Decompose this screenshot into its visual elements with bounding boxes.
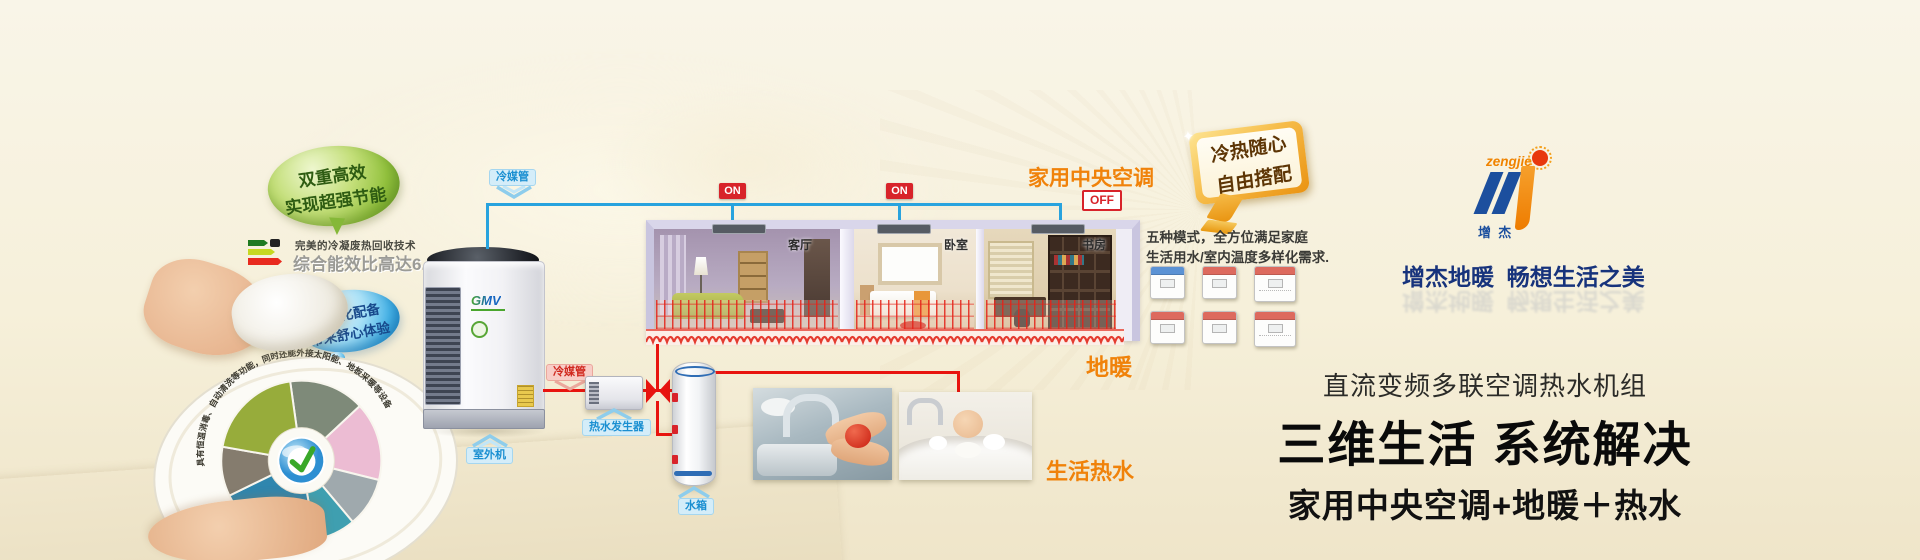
headline-subtitle: 直流变频多联空调热水机组 (1235, 366, 1735, 403)
mode-card-5-header (1203, 312, 1236, 320)
gold-bubble: ✦ 冷热随心 自由搭配 (1180, 114, 1332, 240)
pipe-blue-vertical-unit (486, 205, 489, 249)
room-label-bedroom: 卧室 (944, 236, 968, 253)
banner: 双重高效 实现超强节能 完美的冷凝废热回收技术 综合能效比高达6.6 多样化配备… (0, 0, 1920, 560)
hot-water-generator-vents (589, 382, 599, 404)
cassette-unit-bedroom (877, 224, 931, 234)
room-label-study: 书房 (1082, 236, 1106, 253)
kitchen-sink (757, 444, 837, 476)
bath-photo (899, 392, 1032, 480)
floor-heating-bedroom (856, 300, 974, 329)
mode-card-3 (1254, 266, 1296, 302)
outdoor-unit: GMV (423, 247, 543, 430)
switch-on-bedroom: ON (886, 183, 913, 199)
study-books (1054, 255, 1084, 265)
headline-formula: 家用中央空调+地暖＋热水 (1235, 479, 1735, 527)
switch-on-living: ON (719, 183, 746, 199)
outdoor-unit-label: 室外机 (466, 447, 513, 464)
mode-card-2 (1202, 266, 1237, 299)
outdoor-unit-vent-grille (425, 287, 461, 405)
zone-floor-heating-label: 地暖 (1086, 348, 1132, 382)
water-tank-mark-2 (672, 425, 678, 434)
headline-title: 三维生活 系统解决 (1235, 405, 1735, 475)
water-tank-label: 水箱 (678, 498, 714, 515)
modes-desc-line2: 生活用水/室内温度多样化需求. (1146, 246, 1329, 266)
bath-bubbles-1 (929, 436, 947, 450)
energy-bar-tag (270, 239, 280, 247)
floor-heating-zigzag (646, 329, 1124, 345)
outdoor-unit-chevron-up-icon (470, 434, 510, 447)
bath-faucet (907, 398, 943, 425)
mode-card-5 (1202, 311, 1237, 344)
switch-off-study: OFF (1082, 190, 1122, 211)
kitchen-tomato (845, 424, 871, 448)
mode-card-2-display (1212, 279, 1227, 288)
room-label-living: 客厅 (788, 236, 812, 253)
refrigerant-bottom-chevron-down-icon (552, 380, 588, 391)
refrigerant-pipe-top-label: 冷媒管 (489, 169, 536, 186)
mode-card-6-display (1268, 324, 1283, 333)
floor-heating-living (656, 300, 838, 329)
mode-card-1-header (1151, 267, 1184, 275)
mode-card-3-display (1268, 279, 1283, 288)
living-lamp (694, 257, 708, 275)
hot-water-generator-label: 热水发生器 (582, 419, 651, 436)
wall-pillar-2 (976, 229, 984, 332)
pipe-blue-main (486, 203, 1062, 206)
zone-central-ac-label: 家用中央空调 (1028, 162, 1154, 192)
mode-card-6-caption (1259, 335, 1291, 340)
mode-card-3-caption (1259, 290, 1291, 295)
mode-card-6 (1254, 311, 1296, 347)
bedroom-window (878, 243, 942, 285)
wall-pillar-1 (840, 229, 854, 332)
study-blinds (988, 241, 1034, 299)
pipe-red-tank-right (712, 371, 960, 374)
mode-card-3-header (1255, 267, 1295, 275)
cassette-unit-study (1031, 224, 1085, 234)
water-tank (672, 362, 716, 486)
bath-bubbles-2 (983, 434, 1005, 450)
mode-card-4-display (1160, 324, 1175, 333)
hot-water-generator (585, 376, 643, 410)
cassette-unit-living (712, 224, 766, 234)
bath-bubbles-3 (955, 442, 981, 458)
gold-bubble-sparkle-icon: ✦ (1182, 127, 1196, 145)
water-tank-top-ring (675, 366, 715, 377)
brand-tagline-reflection: 增杰地暖 畅想生活之美 (1402, 286, 1645, 320)
background-cushion-hint (600, 90, 900, 240)
refrigerant-top-chevron-down-icon (494, 186, 534, 199)
brand-logo: zengjie 增 杰 (1476, 146, 1576, 246)
efficiency-headline: 综合能效比高达6.6 (293, 250, 436, 275)
outdoor-unit-eco-badge (471, 321, 488, 338)
mode-card-4-header (1151, 312, 1184, 320)
outdoor-unit-brand-text: GMV (471, 293, 501, 308)
pipe-red-valve-down (656, 401, 659, 435)
mode-card-2-header (1203, 267, 1236, 275)
energy-bar-red (248, 258, 282, 265)
water-tank-mark-1 (672, 393, 678, 402)
valve-right (659, 379, 670, 403)
mode-card-6-header (1255, 312, 1295, 320)
zone-hot-water-label: 生活热水 (1046, 454, 1134, 486)
mode-card-1 (1150, 266, 1185, 299)
outdoor-unit-brand: GMV (471, 293, 501, 308)
water-tank-chevron-up-icon (676, 486, 712, 498)
living-bookshelf (738, 251, 768, 303)
mode-card-5-display (1212, 324, 1227, 333)
brand-logo-sun-icon (1532, 150, 1548, 166)
energy-bar-green (248, 240, 268, 246)
floor-heating-study (986, 300, 1116, 329)
brand-logo-cn: 增 杰 (1478, 222, 1511, 241)
mode-card-4 (1150, 311, 1185, 344)
outdoor-unit-sticker (517, 385, 534, 407)
mode-card-1-display (1160, 279, 1175, 288)
outdoor-unit-brand-underline (471, 309, 505, 311)
modes-desc-line1: 五种模式，全方位满足家庭 (1146, 226, 1308, 246)
bath-boy-face (953, 410, 983, 438)
green-bubble: 双重高效 实现超强节能 (265, 142, 403, 239)
headline-block: 直流变频多联空调热水机组 三维生活 系统解决 家用中央空调+地暖＋热水 (1235, 366, 1735, 527)
green-bubble-tail (328, 217, 345, 235)
valve-left (646, 379, 657, 403)
water-tank-mark-3 (672, 455, 678, 464)
energy-bar-yellow (248, 249, 275, 255)
valve (646, 379, 670, 403)
kitchen-photo (753, 388, 892, 480)
energy-label-icon (248, 240, 292, 268)
water-tank-bottom-band (674, 471, 712, 476)
outdoor-unit-base (423, 409, 545, 429)
